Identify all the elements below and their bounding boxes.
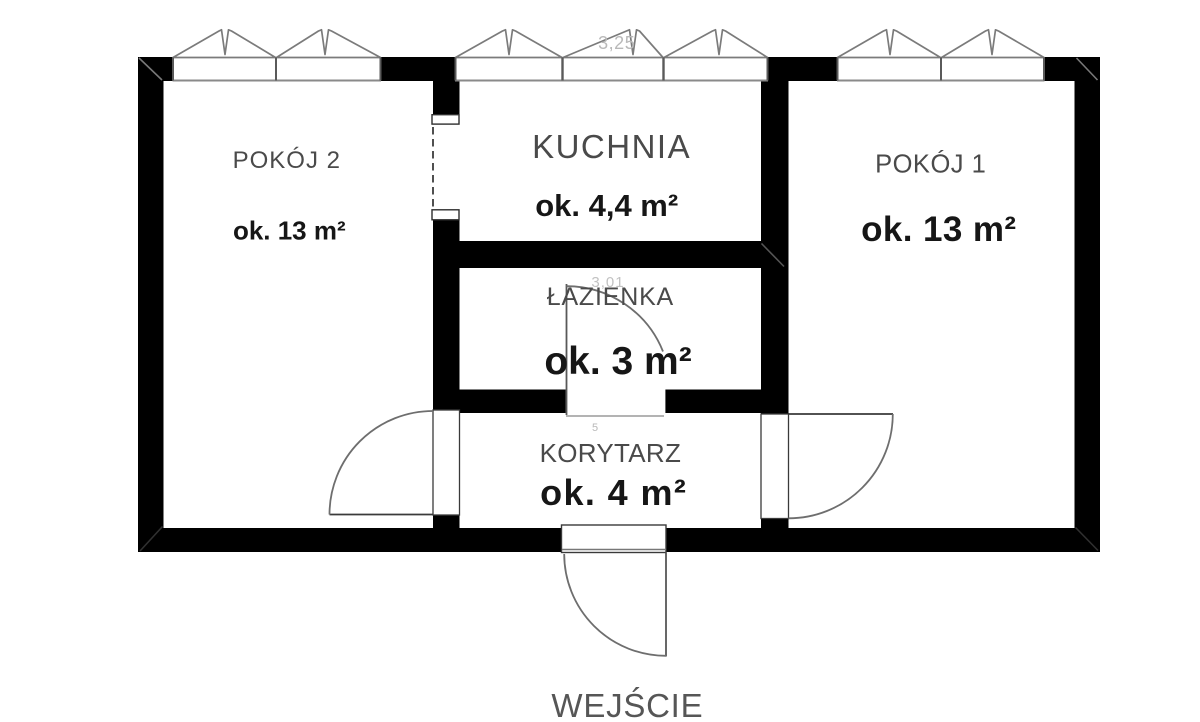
svg-text:KUCHNIA: KUCHNIA [532,128,691,165]
svg-text:ok. 13 m²: ok. 13 m² [861,210,1016,249]
svg-text:ok. 4 m²: ok. 4 m² [540,472,687,513]
svg-text:3,25: 3,25 [598,33,635,53]
svg-text:ok. 4,4 m²: ok. 4,4 m² [535,188,678,223]
svg-text:ŁAZIENKA: ŁAZIENKA [547,283,674,311]
svg-text:POKÓJ 1: POKÓJ 1 [875,150,986,179]
svg-text:POKÓJ 2: POKÓJ 2 [233,147,341,174]
svg-text:KORYTARZ: KORYTARZ [540,438,682,468]
svg-text:5: 5 [592,422,598,434]
svg-text:WEJŚCIE: WEJŚCIE [551,686,703,722]
svg-text:ok. 13 m²: ok. 13 m² [233,216,346,246]
svg-text:ok. 3 m²: ok. 3 m² [544,340,691,383]
